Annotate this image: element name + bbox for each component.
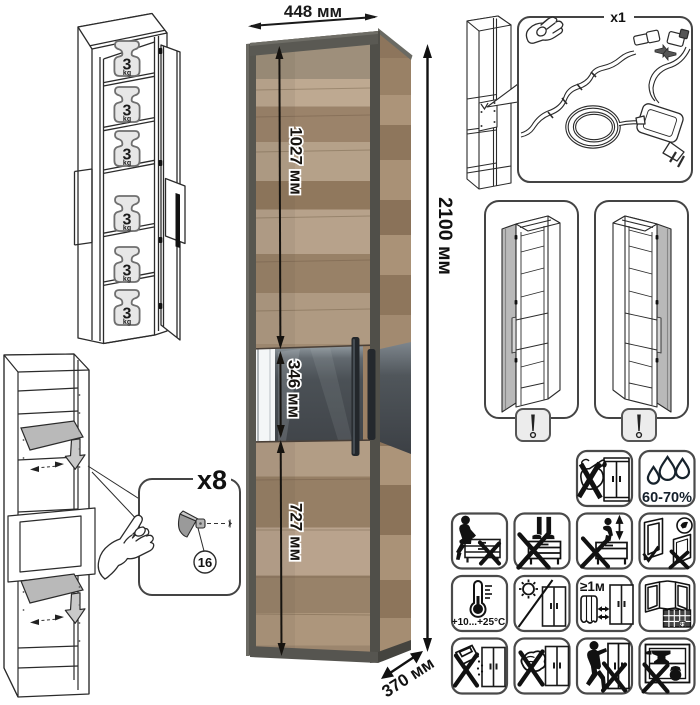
svg-text:≥1м: ≥1м (580, 579, 605, 594)
svg-text:16: 16 (198, 555, 212, 570)
svg-text:21: 21 (680, 622, 686, 628)
svg-text:2100 мм: 2100 мм (434, 197, 456, 275)
svg-text:1027 мм: 1027 мм (287, 127, 306, 195)
svg-text:448 мм: 448 мм (284, 2, 342, 21)
svg-text:346 мм: 346 мм (285, 360, 304, 418)
svg-text:+10...+25°C: +10...+25°C (452, 617, 505, 628)
svg-text:727 мм: 727 мм (287, 503, 306, 561)
svg-text:60-70%: 60-70% (642, 490, 692, 506)
svg-text:x8: x8 (197, 465, 227, 495)
svg-text:x1: x1 (610, 9, 626, 25)
